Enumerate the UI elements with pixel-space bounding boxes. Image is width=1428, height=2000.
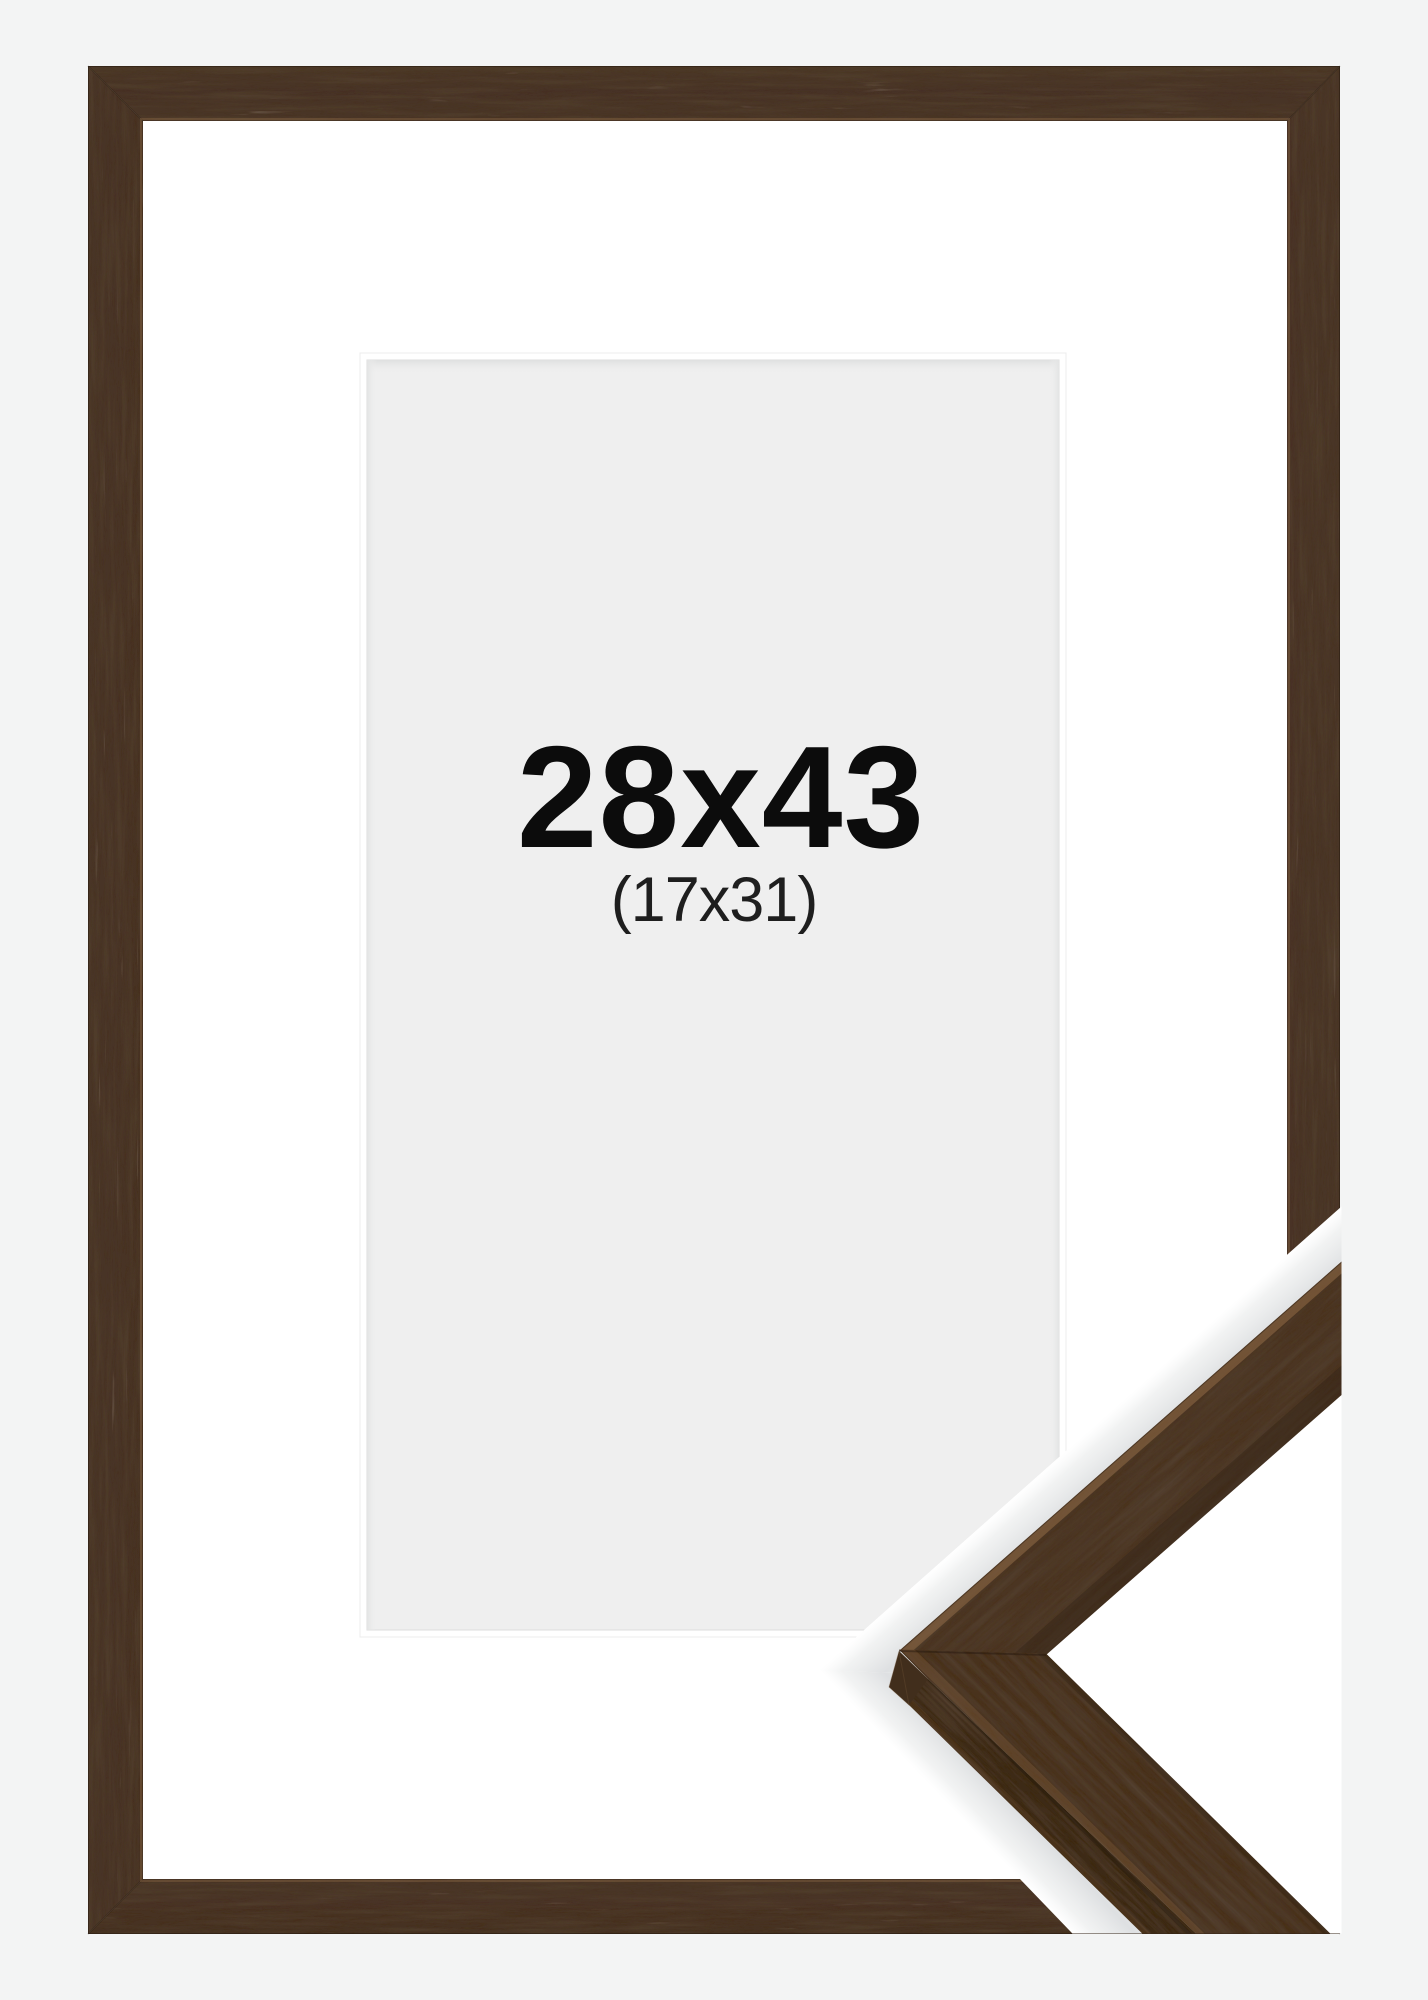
svg-text:28x43: 28x43 bbox=[517, 716, 925, 878]
svg-text:(17x31): (17x31) bbox=[611, 865, 818, 935]
